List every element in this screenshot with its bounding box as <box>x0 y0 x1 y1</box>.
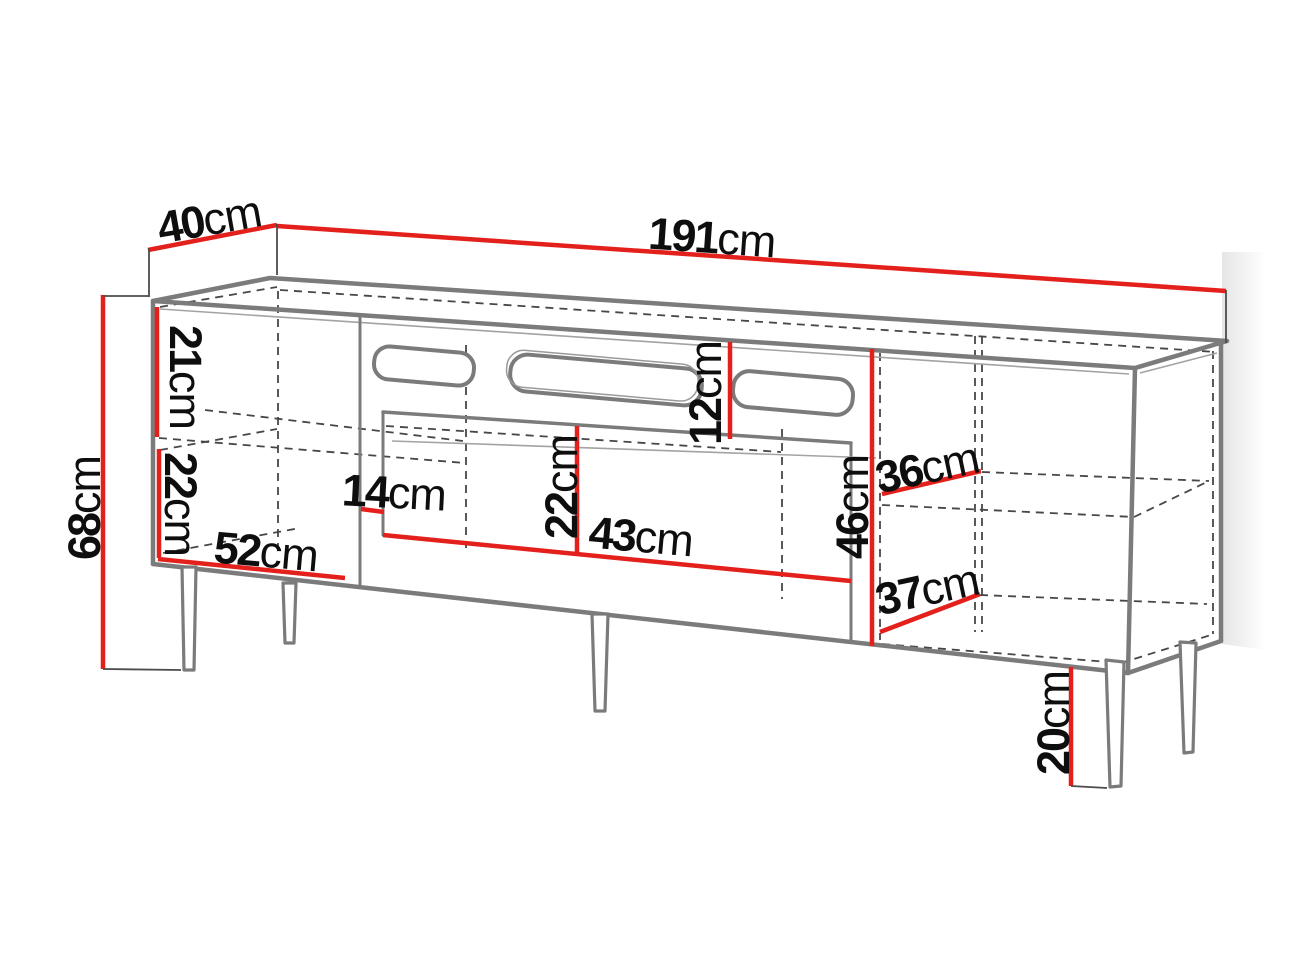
handle-slot-right <box>732 370 855 416</box>
dimension-label-top-opening-height: 12cm <box>680 341 731 445</box>
dimension-label-left-upper-height: 21cm <box>161 325 212 429</box>
cabinet-outline <box>153 278 1227 673</box>
handle-slot-right-cutout <box>732 370 855 416</box>
dimension-labels: 40cm 191cm 68cm 21cm 22cm 52cm 14cm 22cm… <box>59 185 1079 775</box>
dimension-label-left-lower-height: 22cm <box>156 452 207 556</box>
leg-front-left <box>182 567 196 670</box>
right-shelf-side-edge <box>1134 481 1209 517</box>
leg-front-middle <box>592 614 608 711</box>
dimension-label-center-opening-width: 43cm <box>587 506 695 566</box>
leg-back-left <box>283 583 296 643</box>
handle-slot-left <box>373 345 475 387</box>
dimension-diagram: 40cm 191cm 68cm 21cm 22cm 52cm 14cm 22cm… <box>0 0 1298 974</box>
dimension-label-right-shelf-upper-depth: 36cm <box>871 431 983 503</box>
dimension-label-right-shelf-lower-depth: 37cm <box>871 553 983 625</box>
leg-front-right <box>1106 660 1124 787</box>
tick-height-bottom <box>103 669 181 670</box>
dimension-label-height-total: 68cm <box>59 456 110 560</box>
dimension-label-center-gap-width: 14cm <box>341 464 448 520</box>
dimension-label-left-width: 52cm <box>212 521 320 581</box>
dimension-label-center-opening-height: 22cm <box>536 435 587 539</box>
handle-slot-center <box>505 349 704 407</box>
right-shelf-back-edge <box>982 472 1209 481</box>
center-interior-back-top <box>392 441 876 458</box>
diagram-svg: 40cm 191cm 68cm 21cm 22cm 52cm 14cm 22cm… <box>0 0 1298 974</box>
dimension-label-right-opening-height: 46cm <box>827 455 878 559</box>
dimension-label-width-total: 191cm <box>647 207 777 267</box>
center-opening-top-edge <box>383 412 851 443</box>
tick-leg-bottom <box>1071 786 1107 788</box>
dimension-label-leg-height: 20cm <box>1028 671 1079 775</box>
cabinet-shadow <box>1222 252 1266 650</box>
handle-slot-left-cutout <box>373 345 475 387</box>
right-shelf-front-edge <box>882 505 1134 517</box>
dimension-label-depth-top: 40cm <box>153 185 264 253</box>
front-right-edge <box>1128 368 1135 673</box>
leg-back-right <box>1180 642 1196 753</box>
handle-slot-center-cutout <box>509 353 703 407</box>
right-bottom-back-edge <box>980 595 1207 604</box>
handle-slots <box>373 345 855 416</box>
